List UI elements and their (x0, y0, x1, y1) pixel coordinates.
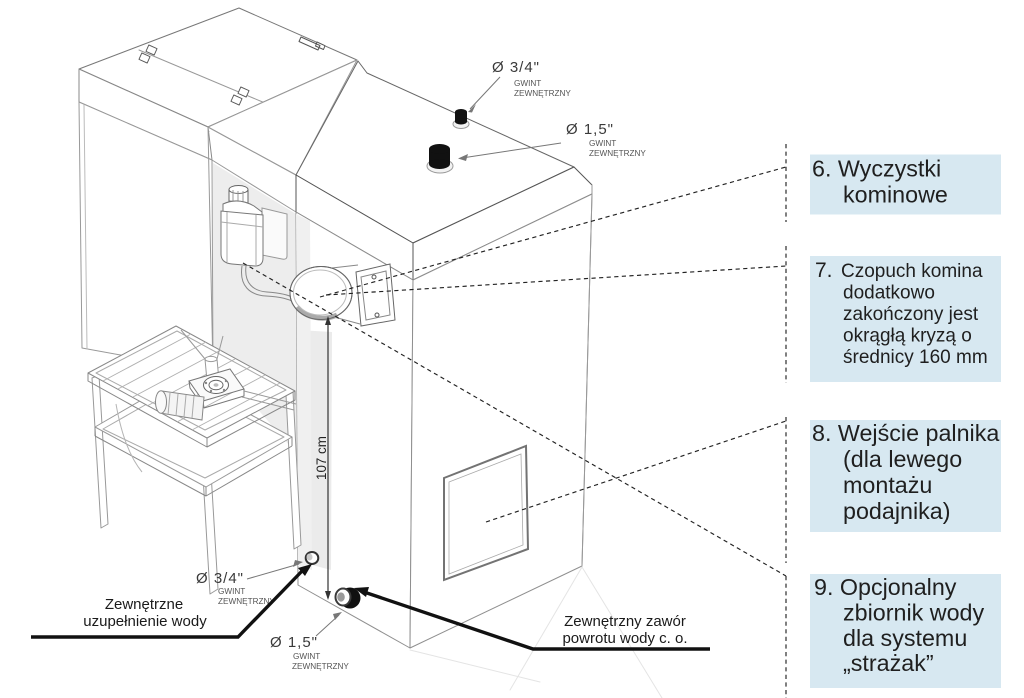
svg-text:ZEWNĘTRZNY: ZEWNĘTRZNY (218, 597, 275, 606)
svg-text:kominowe: kominowe (843, 182, 948, 208)
svg-text:ZEWNĘTRZNY: ZEWNĘTRZNY (514, 89, 571, 98)
svg-text:Zewnętrzne: Zewnętrzne (105, 596, 183, 613)
svg-text:GWINT: GWINT (218, 587, 245, 596)
svg-text:GWINT: GWINT (514, 79, 541, 88)
svg-text:„strażak”: „strażak” (843, 650, 934, 676)
svg-text:zbiornik wody: zbiornik wody (843, 600, 984, 626)
svg-text:ZEWNĘTRZNY: ZEWNĘTRZNY (292, 662, 349, 671)
svg-text:7.: 7. (815, 259, 833, 282)
svg-text:powrotu wody c. o.: powrotu wody c. o. (562, 630, 687, 647)
svg-text:107 cm: 107 cm (314, 436, 329, 480)
svg-text:średnicy 160 mm: średnicy 160 mm (843, 347, 988, 368)
svg-text:podajnika): podajnika) (843, 498, 951, 524)
svg-text:ZEWNĘTRZNY: ZEWNĘTRZNY (589, 149, 646, 158)
svg-text:uzupełnienie wody: uzupełnienie wody (83, 613, 207, 630)
svg-text:Zewnętrzny zawór: Zewnętrzny zawór (564, 613, 686, 630)
svg-text:(dla lewego: (dla lewego (843, 446, 962, 472)
svg-text:montażu: montażu (843, 472, 932, 498)
svg-text:Ø 3/4": Ø 3/4" (196, 570, 244, 587)
svg-text:8. Wejście palnika: 8. Wejście palnika (812, 420, 999, 446)
svg-text:Ø 1,5": Ø 1,5" (566, 121, 614, 138)
svg-text:dla systemu: dla systemu (843, 625, 967, 651)
svg-text:Ø 3/4": Ø 3/4" (492, 59, 540, 76)
svg-text:GWINT: GWINT (293, 652, 320, 661)
svg-text:okrągłą kryzą o: okrągłą kryzą o (843, 326, 972, 347)
svg-text:6. Wyczystki: 6. Wyczystki (812, 156, 941, 182)
svg-text:Ø 1,5": Ø 1,5" (270, 634, 318, 651)
svg-text:dodatkowo: dodatkowo (843, 283, 935, 304)
svg-text:9. Opcjonalny: 9. Opcjonalny (814, 574, 957, 600)
svg-text:Czopuch komina: Czopuch komina (841, 261, 983, 282)
svg-text:zakończony jest: zakończony jest (843, 304, 979, 325)
svg-text:GWINT: GWINT (589, 139, 616, 148)
